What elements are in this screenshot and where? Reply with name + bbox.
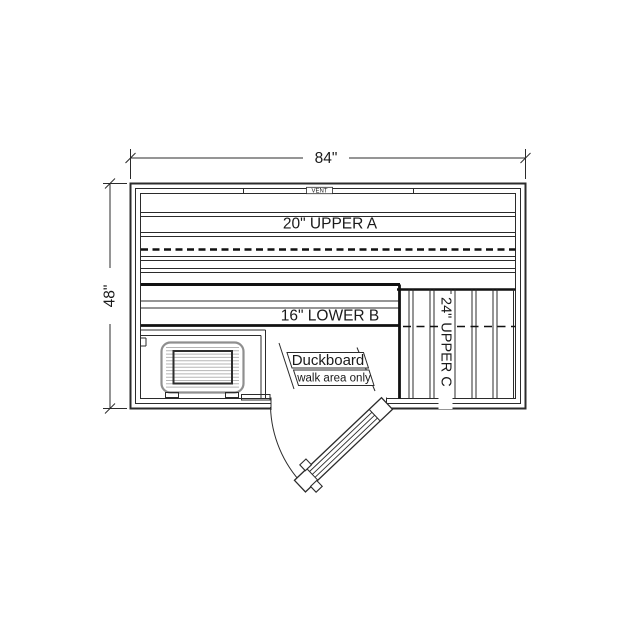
guard-bracket bbox=[141, 338, 146, 346]
bench-a-label: 20" UPPER A bbox=[283, 216, 378, 233]
plank-line bbox=[409, 290, 514, 399]
door-swing-arc bbox=[271, 407, 304, 485]
bench-b-label: 16" LOWER B bbox=[281, 308, 380, 325]
bench-upper-c: 24" UPPER C bbox=[397, 290, 516, 410]
height-dimension-label: 48" bbox=[102, 285, 119, 308]
duckboard-subtitle: walk area only bbox=[296, 373, 371, 385]
floor-plan-drawing: 84" 48" VENT 20" UPPER A 16" LOWER B bbox=[0, 0, 640, 640]
width-dimension-label: 84" bbox=[315, 150, 338, 167]
door-panel-lines bbox=[310, 412, 378, 477]
vent: VENT bbox=[307, 187, 333, 194]
bench-c-label-group: 24" UPPER C bbox=[438, 294, 454, 409]
vent-label: VENT bbox=[311, 189, 327, 195]
dimension-height: 48" bbox=[102, 179, 128, 414]
duckboard-title: Duckboard bbox=[292, 352, 365, 369]
bench-c-label: 24" UPPER C bbox=[438, 297, 454, 387]
door bbox=[271, 392, 398, 497]
door-opening-mask bbox=[272, 394, 387, 412]
duckboard-label: Duckboard walk area only bbox=[279, 343, 375, 391]
dimension-width: 84" bbox=[126, 149, 531, 179]
bench-upper-a: 20" UPPER A bbox=[141, 213, 516, 285]
heater-area bbox=[141, 330, 270, 400]
plan-svg: 84" 48" VENT 20" UPPER A 16" LOWER B bbox=[0, 0, 640, 640]
